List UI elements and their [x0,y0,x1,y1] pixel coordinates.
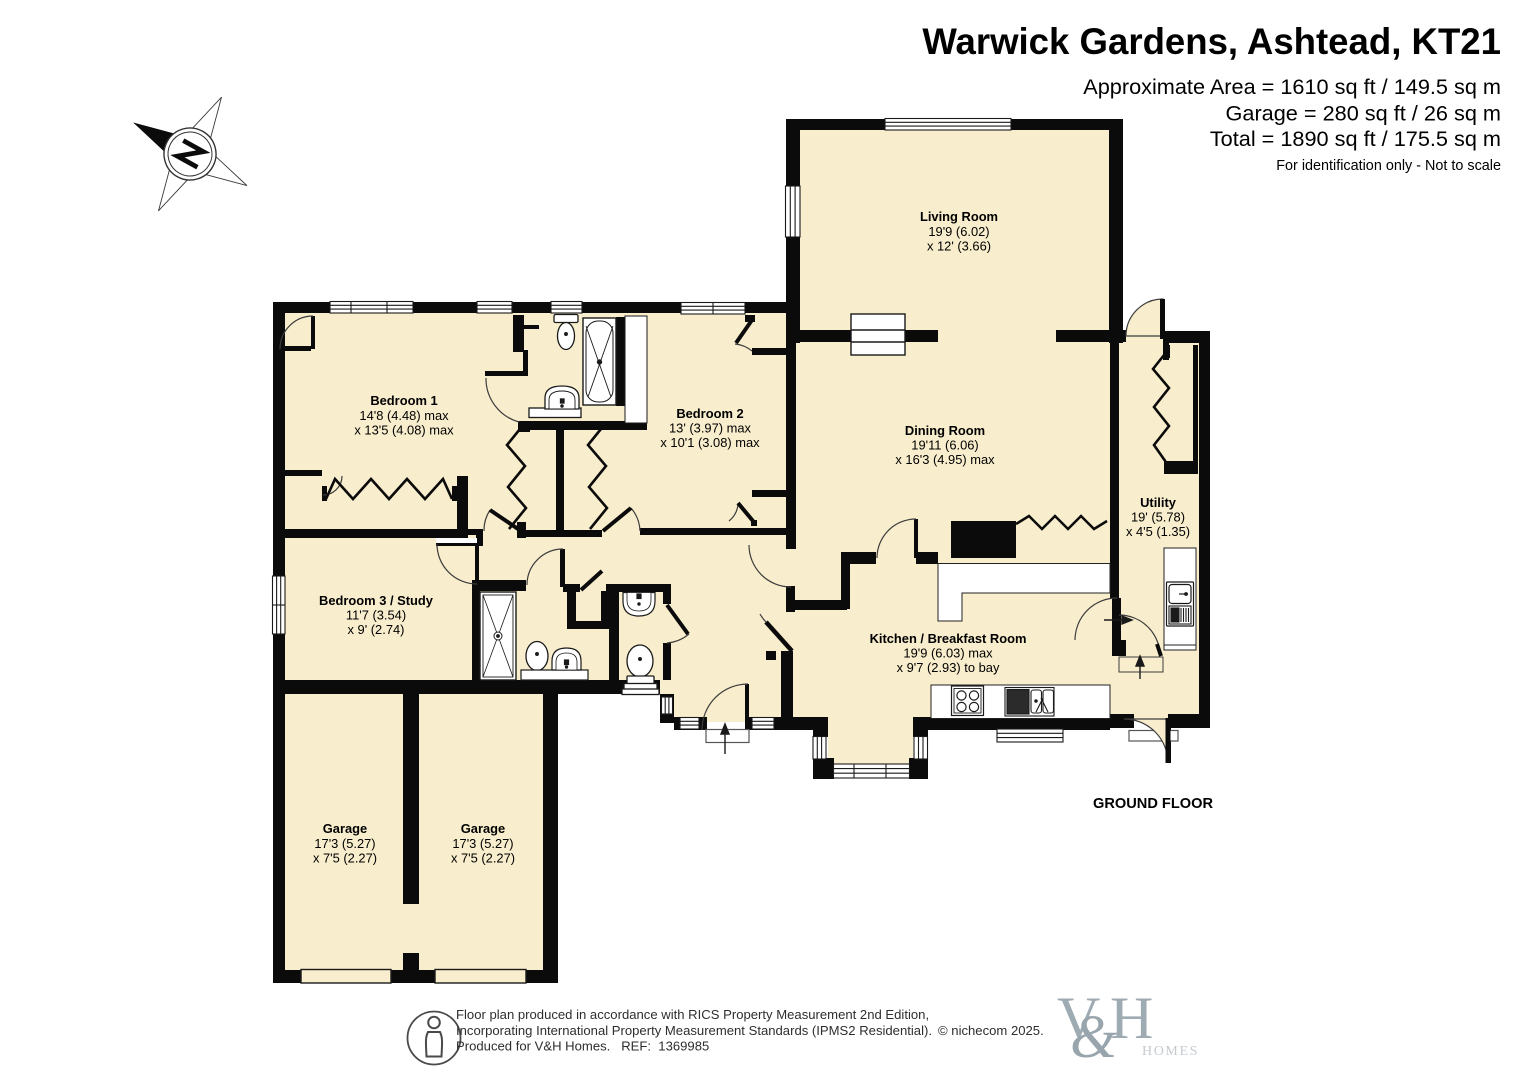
svg-text:Total = 1890 sq ft / 175.5 sq: Total = 1890 sq ft / 175.5 sq m [1210,126,1501,151]
svg-text:&: & [1070,1004,1118,1071]
svg-text:x 13'5 (4.08) max: x 13'5 (4.08) max [354,423,454,438]
svg-text:19' (5.78): 19' (5.78) [1131,510,1185,525]
svg-text:x 10'1 (3.08) max: x 10'1 (3.08) max [660,435,760,450]
svg-text:x 7'5 (2.27): x 7'5 (2.27) [451,851,515,866]
svg-text:Floor plan produced in accorda: Floor plan produced in accordance with R… [456,1007,929,1022]
svg-text:19'9 (6.02): 19'9 (6.02) [928,224,989,239]
svg-text:x 4'5 (1.35): x 4'5 (1.35) [1126,524,1190,539]
svg-text:Bedroom 3 / Study: Bedroom 3 / Study [319,593,434,608]
svg-text:For identification only - Not: For identification only - Not to scale [1276,158,1501,174]
svg-text:Incorporating International Pr: Incorporating International Property Mea… [456,1023,932,1038]
svg-text:© nichecom 2025.: © nichecom 2025. [938,1023,1044,1038]
svg-text:19'11 (6.06): 19'11 (6.06) [911,438,978,453]
svg-text:x 9' (2.74): x 9' (2.74) [348,622,405,637]
svg-text:x 7'5 (2.27): x 7'5 (2.27) [313,851,377,866]
svg-text:HOMES: HOMES [1142,1044,1199,1059]
svg-text:11'7 (3.54): 11'7 (3.54) [346,608,406,623]
svg-text:Produced for V&H Homes. REF:: Produced for V&H Homes. REF: 1369985 [456,1039,709,1054]
svg-text:Garage: Garage [461,821,505,836]
svg-text:13' (3.97) max: 13' (3.97) max [669,421,752,436]
svg-text:x 16'3 (4.95) max: x 16'3 (4.95) max [895,452,995,467]
svg-text:17'3 (5.27): 17'3 (5.27) [452,836,513,851]
svg-text:Living Room: Living Room [920,209,998,224]
svg-text:Kitchen / Breakfast Room: Kitchen / Breakfast Room [870,631,1027,646]
svg-text:x 9'7 (2.93) to bay: x 9'7 (2.93) to bay [897,660,1000,675]
svg-text:Warwick Gardens, Ashtead, KT21: Warwick Gardens, Ashtead, KT21 [922,21,1501,62]
svg-text:19'9 (6.03) max: 19'9 (6.03) max [903,646,993,661]
svg-text:Approximate Area = 1610 sq ft: Approximate Area = 1610 sq ft / 149.5 sq… [1083,74,1501,99]
svg-text:Garage = 280 sq ft / 26 sq m: Garage = 280 sq ft / 26 sq m [1226,101,1501,126]
svg-text:Utility: Utility [1140,495,1177,510]
svg-text:GROUND FLOOR: GROUND FLOOR [1093,796,1213,812]
svg-text:17'3 (5.27): 17'3 (5.27) [314,836,375,851]
svg-text:14'8 (4.48) max: 14'8 (4.48) max [359,408,449,423]
svg-text:x 12' (3.66): x 12' (3.66) [927,239,991,254]
svg-text:Bedroom 2: Bedroom 2 [676,406,743,421]
svg-text:Bedroom 1: Bedroom 1 [370,393,437,408]
svg-text:Dining Room: Dining Room [905,423,985,438]
svg-text:Garage: Garage [323,821,367,836]
